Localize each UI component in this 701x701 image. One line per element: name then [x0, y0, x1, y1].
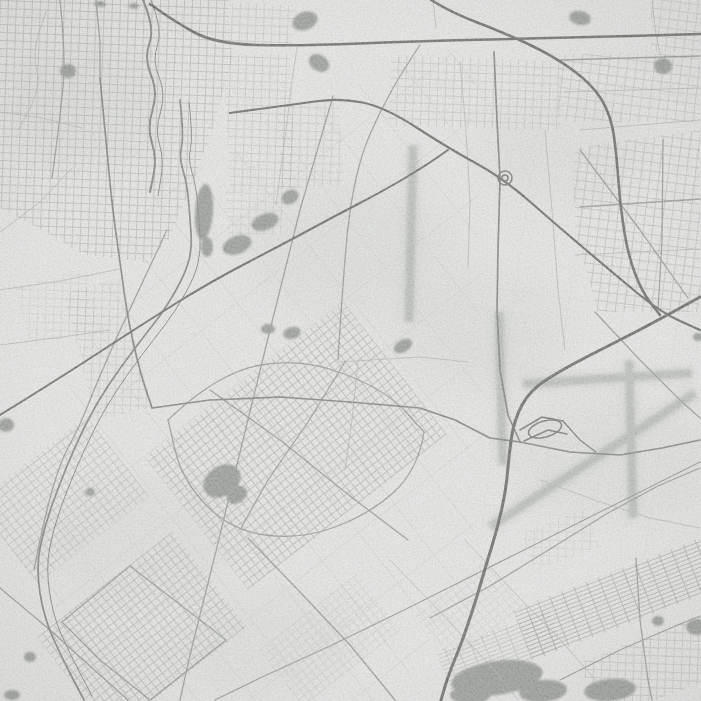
vignette: [0, 0, 701, 701]
map-viewport: [0, 0, 701, 701]
map-canvas[interactable]: [0, 0, 701, 701]
